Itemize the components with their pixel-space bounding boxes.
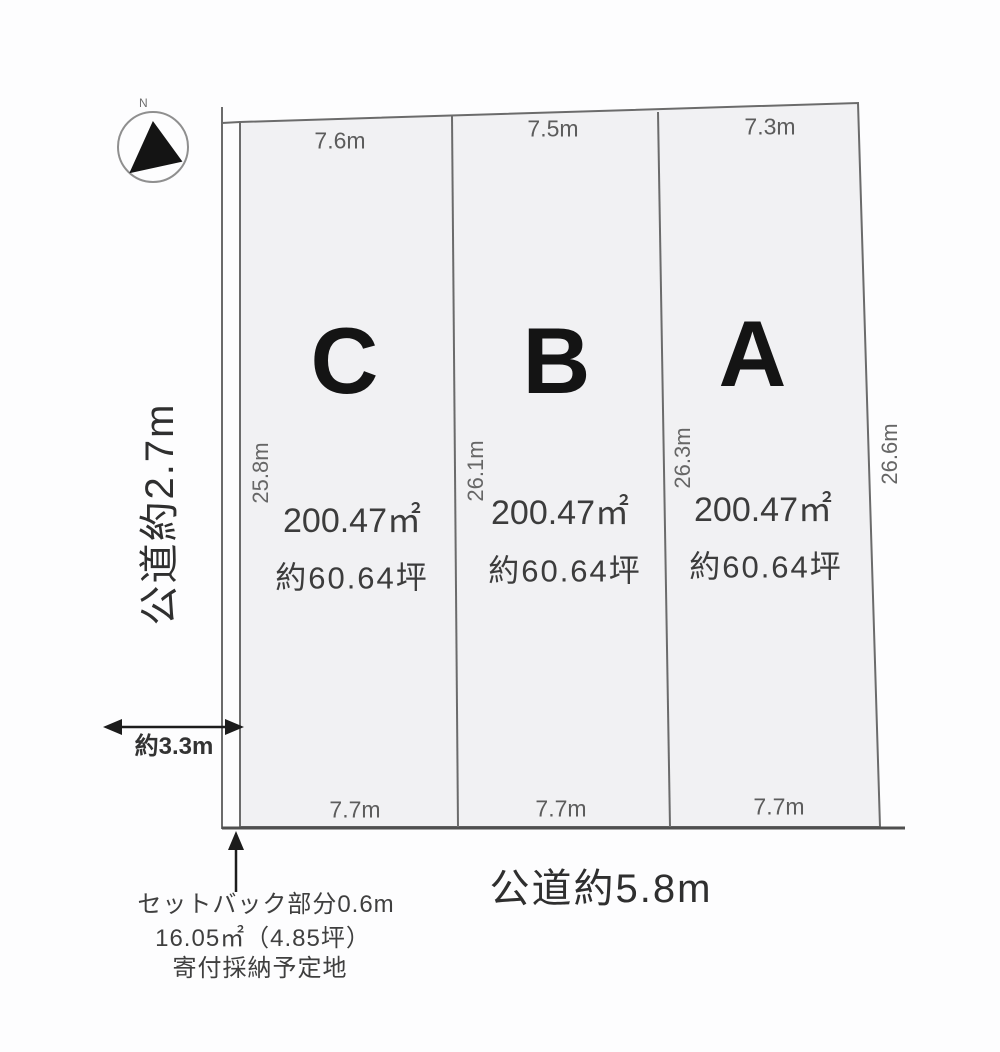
plot-b-bottom-width: 7.7m	[535, 798, 586, 821]
setback-note-line2: 16.05㎡（4.85坪）	[155, 927, 371, 951]
plot-a-bottom-width: 7.7m	[753, 796, 804, 819]
plot-a-depth-left: 26.3m	[672, 427, 694, 488]
plot-c-bottom-width: 7.7m	[329, 799, 380, 822]
plot-c-area-tsubo: 約60.64坪	[275, 563, 429, 594]
setback-note-line3: 寄付採納予定地	[173, 957, 348, 981]
arrow-head-left	[103, 719, 122, 735]
plot-b-depth-left: 26.1m	[465, 440, 487, 501]
plot-b-area-tsubo: 約60.64坪	[488, 556, 642, 587]
plot-a-area-tsubo: 約60.64坪	[689, 552, 843, 583]
plot-c-letter: C	[311, 314, 380, 408]
parcel-outline	[240, 103, 880, 827]
plot-c-depth-left: 25.8m	[250, 442, 272, 503]
plot-a-area-m2: 200.47㎡	[694, 493, 832, 527]
setback-note-line1: セットバック部分0.6m	[137, 893, 394, 917]
plot-b-letter: B	[523, 314, 592, 408]
setback-pointer-arrow	[228, 831, 244, 892]
arrow-head-up	[228, 831, 244, 850]
plot-c-top-width: 7.6m	[314, 130, 365, 153]
bottom-road-label: 公道約5.8m	[490, 869, 713, 909]
setback-arrow-label: 約3.3m	[135, 735, 214, 759]
compass-north-label: N	[139, 96, 148, 110]
left-road-label: 公道約2.7m	[140, 403, 180, 626]
top-boundary-extension-line	[222, 122, 240, 123]
plot-b-area-m2: 200.47㎡	[491, 496, 629, 530]
plot-b-top-width: 7.5m	[527, 118, 578, 141]
plot-c-area-m2: 200.47㎡	[283, 504, 421, 538]
land-subdivision-plan: N 7.6m 7.5m 7.3m C B A 25.8m 26.1m 26.3m…	[0, 0, 1000, 1052]
plot-a-letter: A	[719, 307, 788, 401]
plot-a-top-width: 7.3m	[744, 116, 795, 139]
plot-a-depth-right: 26.6m	[879, 423, 901, 484]
